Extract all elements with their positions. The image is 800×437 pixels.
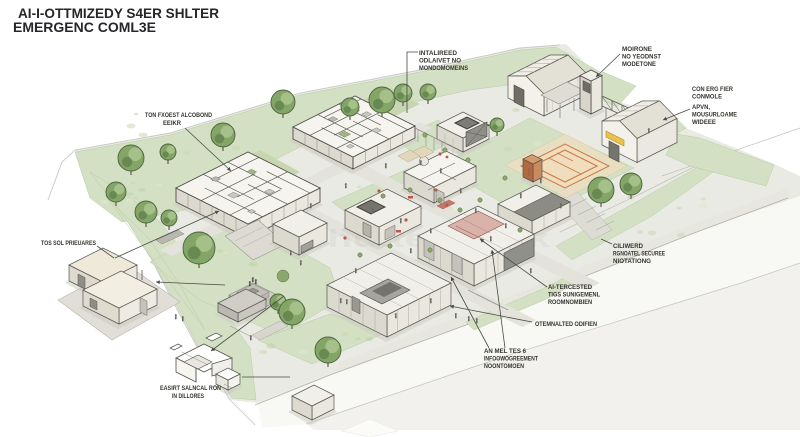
svg-text:EASIRT SALNCAL RON: EASIRT SALNCAL RON — [160, 385, 221, 392]
svg-text:TIGS SUNIGEMENL: TIGS SUNIGEMENL — [548, 292, 600, 299]
svg-text:AN MEL TES 6: AN MEL TES 6 — [484, 348, 526, 355]
svg-text:TOS SOL PRIEUARES: TOS SOL PRIEUARES — [41, 240, 97, 247]
svg-text:MODETONE: MODETONE — [622, 61, 657, 68]
svg-text:MONDOMOMEINS: MONDOMOMEINS — [419, 65, 469, 72]
svg-text:NOONTOMOEN: NOONTOMOEN — [484, 363, 524, 370]
svg-text:OTEMNALTED ODIFIEN: OTEMNALTED ODIFIEN — [535, 321, 597, 328]
svg-text:IN DILLORES: IN DILLORES — [172, 393, 205, 400]
svg-text:INFOOWOGREEMENT: INFOOWOGREEMENT — [484, 356, 538, 363]
svg-text:ODLAIVET NO: ODLAIVET NO — [419, 58, 461, 65]
svg-text:MOIRONE: MOIRONE — [622, 46, 653, 53]
svg-text:WIDEEE: WIDEEE — [692, 119, 717, 126]
svg-text:TON FXOEST ALCOBOND: TON FXOEST ALCOBOND — [145, 112, 212, 119]
svg-text:RGNOATEL SECUREE: RGNOATEL SECUREE — [613, 251, 666, 258]
svg-text:EMERGENC COML3E: EMERGENC COML3E — [13, 19, 156, 35]
svg-text:EEIKR: EEIKR — [163, 120, 181, 127]
svg-text:CON ERG FIER: CON ERG FIER — [692, 86, 733, 93]
svg-text:NO YEODNST: NO YEODNST — [622, 54, 661, 61]
svg-text:AI-TERCESTED: AI-TERCESTED — [548, 284, 592, 291]
svg-text:APVN,: APVN, — [692, 104, 710, 111]
svg-text:CONMOLE: CONMOLE — [692, 94, 723, 101]
svg-text:INTALIREED: INTALIREED — [419, 50, 457, 57]
svg-text:NIOTATIONG: NIOTATIONG — [613, 258, 651, 265]
svg-text:CILIWERD: CILIWERD — [613, 243, 643, 250]
svg-text:ROOMNOMBIEN: ROOMNOMBIEN — [548, 299, 592, 306]
svg-text:MOUSURLOAME: MOUSURLOAME — [692, 112, 738, 119]
